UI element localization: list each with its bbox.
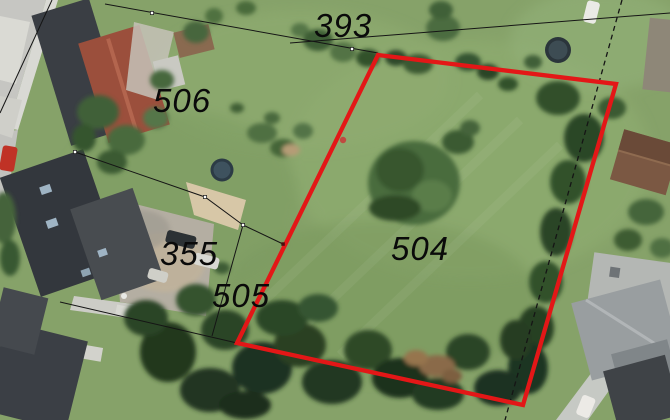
boundary-point-on-highlight — [281, 242, 285, 246]
trampoline-393 — [545, 37, 571, 63]
parcel-label-355: 355 — [160, 235, 218, 272]
parcel-label-506: 506 — [153, 82, 211, 119]
aerial-map[interactable]: 393 506 355 505 504 — [0, 0, 670, 420]
parcel-label-393: 393 — [314, 7, 372, 44]
parcel-label-505: 505 — [212, 277, 270, 314]
red-garden-object — [340, 137, 346, 143]
parcel-label-504: 504 — [391, 230, 449, 267]
trampoline-506 — [211, 159, 234, 182]
